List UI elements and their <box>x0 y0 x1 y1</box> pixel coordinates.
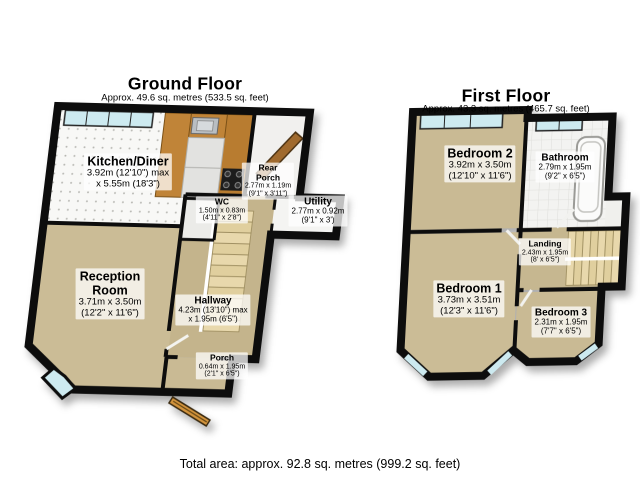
room-label-bedroom-1: Bedroom 1 3.73m x 3.51m (12'3" x 11'6") <box>433 280 504 317</box>
room-label-reception-room: Reception Room 3.71m x 3.50m (12'2" x 11… <box>76 268 145 319</box>
room-label-utility: Utility 2.77m x 0.92m (9'1" x 3') <box>289 195 348 226</box>
kitchen-window-icon <box>64 110 154 127</box>
room-label-rear-porch: Rear Porch 2.77m x 1.19m (9'1" x 3'11") <box>242 163 294 200</box>
stairs-first-floor <box>564 230 623 285</box>
room-label-wc: WC 1.50m x 0.83m (4'11" x 2'8") <box>196 196 248 223</box>
floorplan-page: Ground Floor Approx. 49.6 sq. metres (53… <box>0 0 640 480</box>
ground-floor-title: Ground Floor <box>128 74 242 95</box>
total-area-text: Total area: approx. 92.8 sq. metres (999… <box>180 457 461 471</box>
room-label-bathroom: Bathroom 2.79m x 1.95m (9'2" x 6'5") <box>536 151 595 182</box>
room-label-kitchen-diner: Kitchen/Diner 3.92m (12'10") max x 5.55m… <box>84 153 172 190</box>
room-label-porch: Porch 0.64m x 1.95m (2'1" x 6'5") <box>196 352 248 379</box>
bedroom2-window-icon <box>420 113 503 128</box>
ground-floor-subtitle: Approx. 49.6 sq. metres (533.5 sq. feet) <box>101 93 268 104</box>
first-floor-subtitle: Approx. 43.3 sq. metres (465.7 sq. feet) <box>422 104 589 115</box>
room-label-bedroom-3: Bedroom 3 2.31m x 1.95m (7'7" x 6'5") <box>532 306 591 337</box>
room-label-hallway: Hallway 4.23m (13'10") max x 1.95m (6'5"… <box>175 294 250 325</box>
sink-icon <box>191 118 219 135</box>
room-label-bedroom-2: Bedroom 2 3.92m x 3.50m (12'10" x 11'6") <box>444 145 515 182</box>
room-label-landing: Landing 2.43m x 1.95m (8' x 6'5") <box>519 238 571 265</box>
front-door-icon <box>166 397 212 426</box>
ground-floor-plan <box>19 106 351 429</box>
